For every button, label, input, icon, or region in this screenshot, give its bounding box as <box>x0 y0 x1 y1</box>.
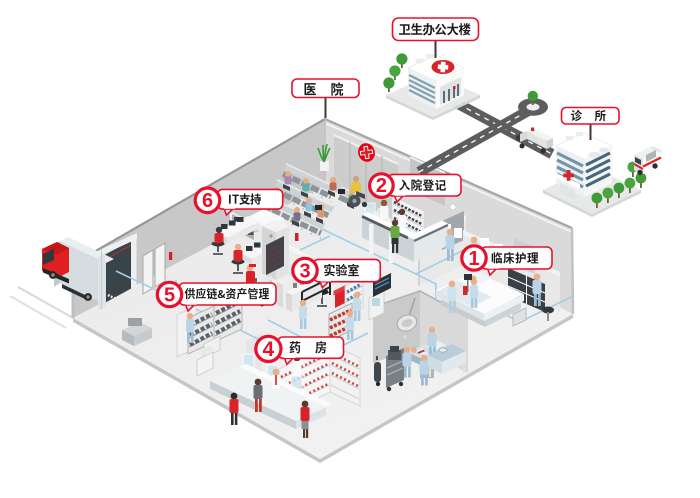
svg-text:5: 5 <box>164 284 175 306</box>
svg-text:1: 1 <box>468 248 479 270</box>
svg-text:2: 2 <box>376 175 387 197</box>
svg-text:4: 4 <box>263 338 275 361</box>
svg-text:6: 6 <box>202 190 213 212</box>
svg-text:3: 3 <box>299 260 310 282</box>
